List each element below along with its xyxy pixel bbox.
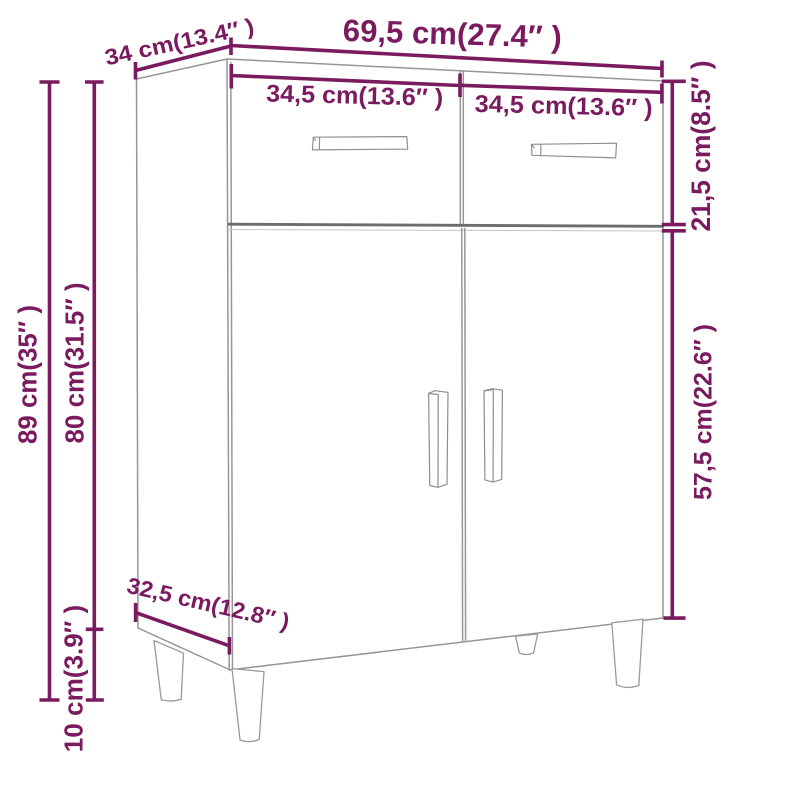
svg-text:32,5 cm(12.8″ ): 32,5 cm(12.8″ ) [125, 572, 293, 635]
svg-text:34,5 cm(13.6″ ): 34,5 cm(13.6″ ) [474, 91, 653, 122]
svg-text:10 cm(3.9″ ): 10 cm(3.9″ ) [61, 605, 89, 753]
svg-text:34,5 cm(13.6″ ): 34,5 cm(13.6″ ) [266, 81, 444, 112]
svg-text:80 cm(31.5″ ): 80 cm(31.5″ ) [62, 283, 90, 444]
svg-text:69,5 cm(27.4″ ): 69,5 cm(27.4″ ) [342, 13, 562, 55]
svg-text:89 cm(35″ ): 89 cm(35″ ) [15, 305, 43, 444]
svg-text:57,5 cm(22.6″ ): 57,5 cm(22.6″ ) [690, 324, 718, 500]
svg-text:21,5 cm(8.5″ ): 21,5 cm(8.5″ ) [686, 61, 716, 232]
svg-text:34 cm(13.4″ ): 34 cm(13.4″ ) [102, 14, 256, 71]
